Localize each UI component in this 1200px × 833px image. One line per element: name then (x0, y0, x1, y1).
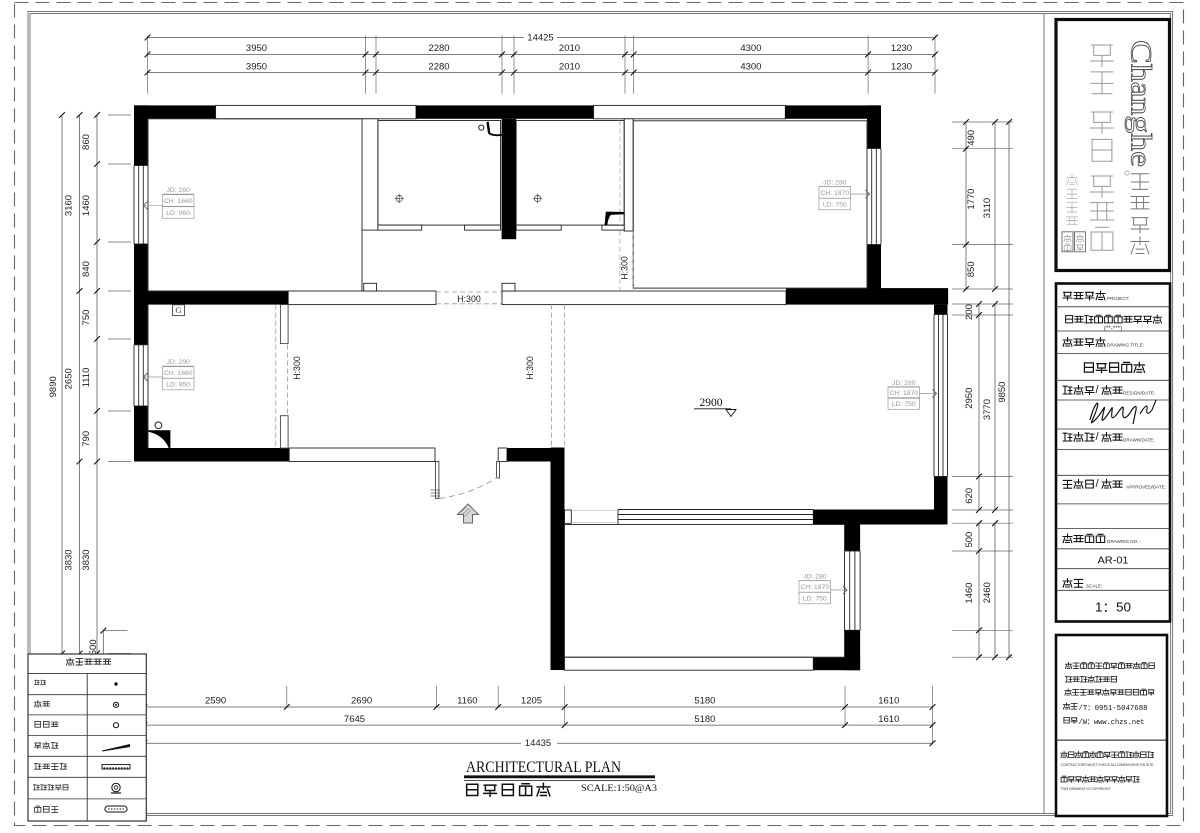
svg-text:JD: 280: JD: 280 (892, 380, 916, 387)
svg-text:9890: 9890 (48, 376, 59, 397)
svg-text:490: 490 (966, 130, 977, 146)
svg-text:2690: 2690 (351, 696, 372, 707)
svg-text:CH: 1660: CH: 1660 (164, 370, 193, 377)
svg-text:2280: 2280 (428, 43, 449, 54)
svg-text:2900: 2900 (700, 397, 723, 409)
svg-text:4300: 4300 (740, 61, 761, 72)
svg-text:H:300: H:300 (292, 356, 302, 380)
svg-text:G: G (175, 305, 181, 315)
svg-text:1770: 1770 (966, 189, 977, 210)
svg-text:1110: 1110 (81, 368, 92, 388)
svg-text:3770: 3770 (982, 399, 993, 420)
svg-text:AR-01: AR-01 (1098, 555, 1129, 567)
svg-text:CH: 1660: CH: 1660 (164, 198, 193, 205)
svg-text:3110: 3110 (982, 198, 993, 218)
svg-text:2590: 2590 (205, 696, 226, 707)
svg-text:JD: 280: JD: 280 (803, 573, 827, 580)
svg-text:3950: 3950 (246, 61, 267, 72)
svg-text:14425: 14425 (527, 33, 553, 44)
svg-text:CH: 1870: CH: 1870 (889, 390, 918, 397)
svg-text:1160: 1160 (457, 696, 477, 707)
svg-text:500: 500 (88, 639, 99, 655)
svg-text:(**-***): (**-***) (1104, 325, 1122, 332)
svg-text:850: 850 (966, 261, 977, 277)
svg-text:3160: 3160 (64, 195, 75, 216)
svg-text:/W：www.chzs.net: /W：www.chzs.net (1079, 719, 1145, 727)
svg-text:JD: 290: JD: 290 (166, 359, 190, 366)
svg-text:1230: 1230 (891, 61, 912, 72)
svg-text:DRAWING TITLE:: DRAWING TITLE: (1107, 343, 1144, 348)
svg-text:PROJECT:: PROJECT: (1107, 296, 1129, 301)
svg-text:LD: 750: LD: 750 (803, 595, 827, 602)
svg-text:ARCHITECTURAL PLAN: ARCHITECTURAL PLAN (466, 759, 621, 776)
svg-text:CH: 1870: CH: 1870 (820, 190, 849, 197)
svg-text:1610: 1610 (878, 696, 899, 707)
svg-text:1610: 1610 (878, 714, 899, 725)
svg-text:620: 620 (964, 488, 975, 504)
svg-text:840: 840 (81, 261, 92, 277)
svg-text:SCALE:: SCALE: (1086, 584, 1102, 589)
svg-text:7645: 7645 (344, 714, 365, 725)
svg-text:3830: 3830 (81, 549, 92, 570)
svg-text:LD: 950: LD: 950 (166, 381, 190, 388)
svg-text:JD: 280: JD: 280 (823, 179, 847, 186)
svg-text:790: 790 (81, 431, 92, 447)
svg-text:1：50: 1：50 (1095, 601, 1131, 615)
svg-text:DRAWN/DATE:: DRAWN/DATE: (1123, 438, 1155, 443)
svg-text:1460: 1460 (964, 583, 975, 604)
svg-text:5180: 5180 (694, 696, 715, 707)
svg-text:1230: 1230 (891, 43, 912, 54)
svg-text:CONTRACTORS MUST CHECK ALL DIM: CONTRACTORS MUST CHECK ALL DIMENSIONS ON… (1061, 762, 1154, 767)
svg-text:200: 200 (964, 304, 975, 320)
svg-text:JD: 280: JD: 280 (166, 187, 190, 194)
svg-text:4300: 4300 (740, 43, 761, 54)
svg-text:CH: 1870: CH: 1870 (800, 584, 829, 591)
svg-text:2460: 2460 (982, 582, 993, 603)
svg-text:DRAWING NO. :: DRAWING NO. : (1107, 539, 1141, 544)
svg-text:APPROVED/DATE:: APPROVED/DATE: (1126, 485, 1166, 490)
svg-text:3950: 3950 (246, 43, 267, 54)
svg-text:SCALE:1:50@A3: SCALE:1:50@A3 (581, 783, 657, 794)
svg-text:3830: 3830 (64, 549, 75, 570)
svg-text:2010: 2010 (559, 61, 580, 72)
svg-text:1205: 1205 (521, 696, 542, 707)
svg-text:LD: 750: LD: 750 (892, 401, 916, 408)
svg-text:860: 860 (81, 134, 92, 150)
svg-text:DESIGN/DATE:: DESIGN/DATE: (1123, 391, 1155, 396)
svg-text:THIS DRAWING IS COPYRIGHT: THIS DRAWING IS COPYRIGHT (1061, 786, 1111, 791)
svg-text:H:300: H:300 (525, 356, 535, 380)
svg-text:2650: 2650 (64, 368, 75, 389)
svg-text:9850: 9850 (997, 382, 1008, 403)
svg-text:750: 750 (81, 310, 92, 326)
svg-text:H:300: H:300 (457, 294, 481, 304)
svg-text:14435: 14435 (525, 738, 551, 749)
svg-text:5180: 5180 (694, 714, 715, 725)
svg-text:1460: 1460 (81, 195, 92, 216)
svg-text:2950: 2950 (964, 388, 975, 409)
svg-text:LD: 750: LD: 750 (823, 201, 847, 208)
svg-text:H:300: H:300 (620, 256, 630, 280)
svg-text:Changhe: Changhe (1125, 40, 1157, 167)
svg-text:LD: 960: LD: 960 (166, 210, 190, 217)
svg-text:2280: 2280 (428, 61, 449, 72)
svg-text:500: 500 (964, 532, 975, 548)
svg-text:/T：0951-5047688: /T：0951-5047688 (1079, 705, 1148, 713)
svg-text:2010: 2010 (559, 43, 580, 54)
